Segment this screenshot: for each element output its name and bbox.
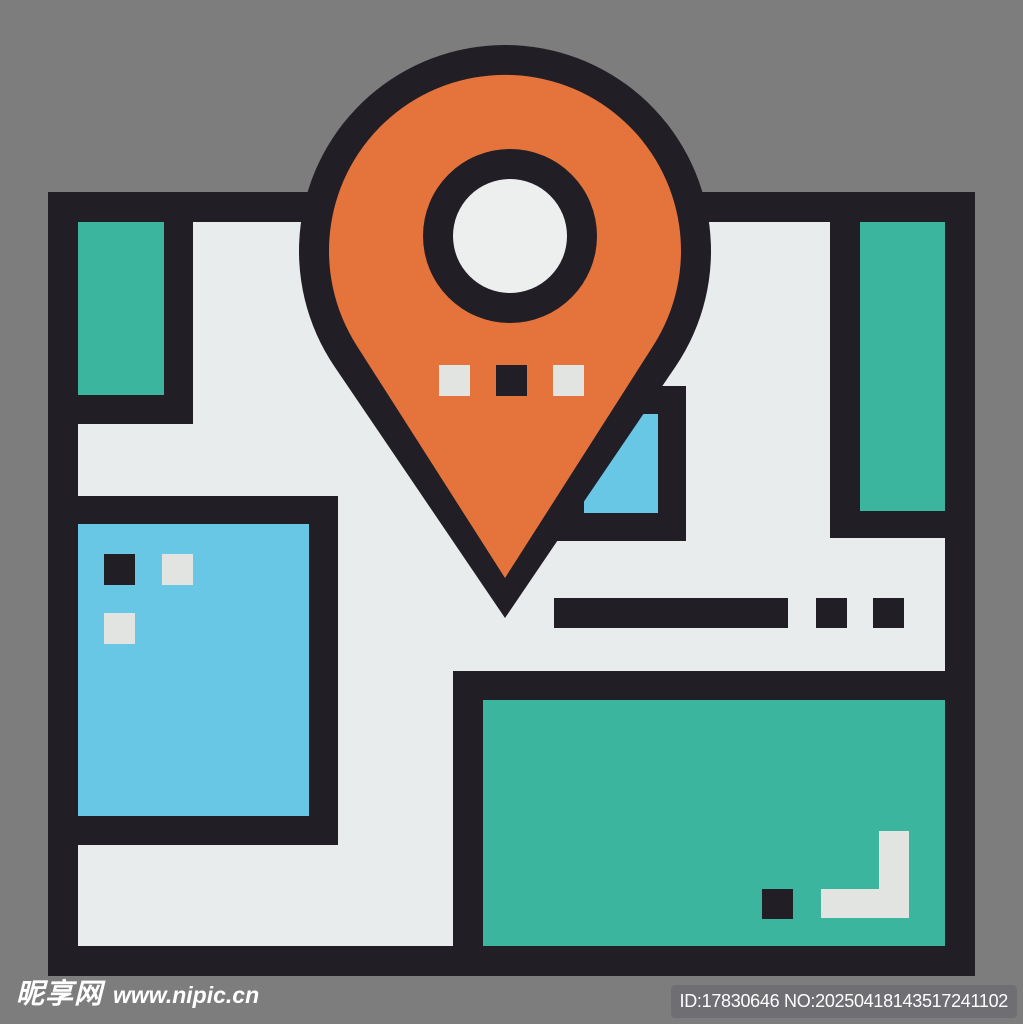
map-with-location-pin-icon bbox=[0, 0, 1023, 1024]
pin-hole bbox=[453, 179, 567, 293]
park-dark-square bbox=[762, 889, 793, 919]
block-topleft-teal bbox=[78, 222, 164, 395]
watermark-site-name: 昵享网 bbox=[16, 972, 103, 1012]
road-dash-square-1 bbox=[816, 598, 847, 628]
window-light-icon-2 bbox=[104, 613, 135, 644]
road-dash-long bbox=[554, 598, 788, 628]
watermark-site-url: www.nipic.cn bbox=[113, 982, 259, 1009]
window-dark-icon bbox=[104, 554, 135, 585]
pin-dot-1 bbox=[439, 365, 470, 396]
watermark: 昵享网 www.nipic.cn bbox=[16, 972, 259, 1012]
block-topright-teal bbox=[860, 222, 945, 511]
pin-dot-2 bbox=[496, 365, 527, 396]
road-dash-square-2 bbox=[873, 598, 904, 628]
image-id-badge: ID:17830646 NO:20250418143517241102 bbox=[671, 985, 1017, 1018]
stock-image-page: 昵享网 www.nipic.cn ID:17830646 NO:20250418… bbox=[0, 0, 1023, 1024]
pin-dot-3 bbox=[553, 365, 584, 396]
window-light-icon-1 bbox=[162, 554, 193, 585]
